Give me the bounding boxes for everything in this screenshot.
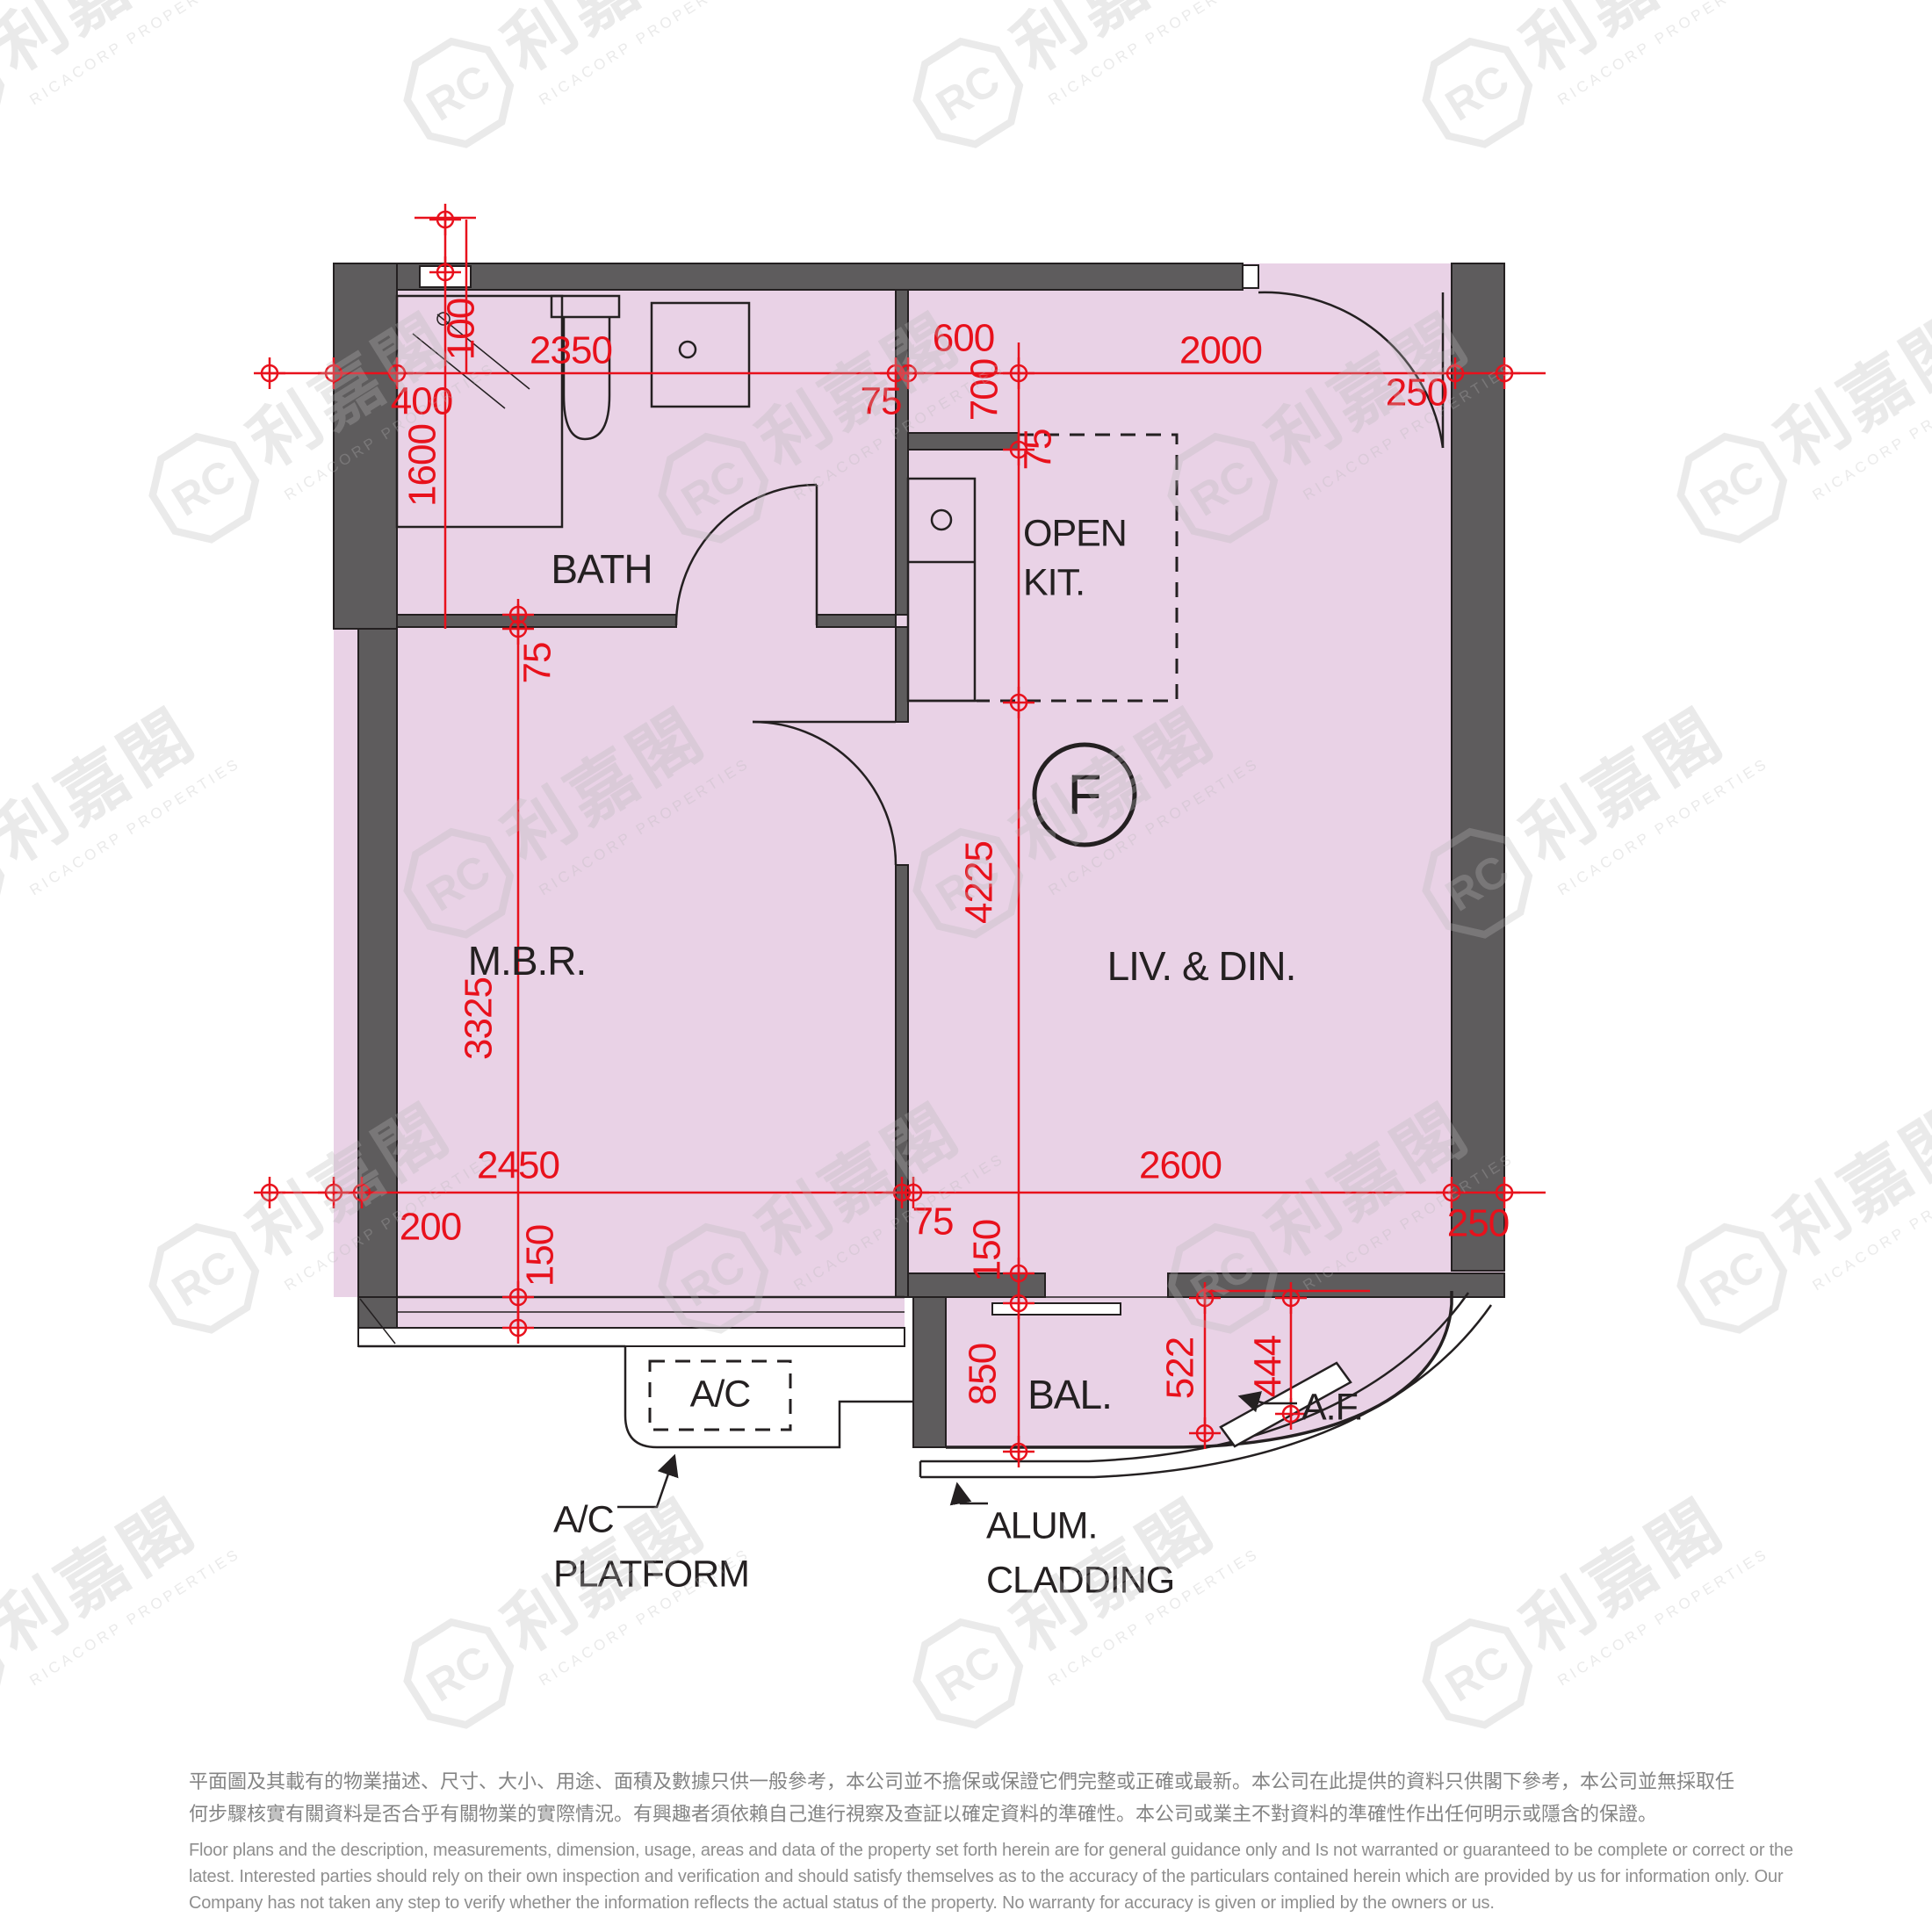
ac-platform-arrow — [617, 1456, 674, 1507]
wall-bath-bottom-right — [817, 615, 896, 627]
dim-444: 444 — [1247, 1335, 1290, 1397]
unit-floor — [334, 263, 1504, 1297]
unit-badge-letter: F — [1067, 763, 1101, 826]
wall-right — [1452, 263, 1504, 1271]
label-ac-unit: A/C — [690, 1373, 751, 1415]
dim-2600: 2600 — [1139, 1144, 1222, 1187]
alum-cladding-arrow — [957, 1484, 988, 1503]
wall-bath-bottom-left — [397, 615, 676, 627]
disclaimer-block: 平面圖及其載有的物業描述、尺寸、大小、用途、面積及數據只供一般參考，本公司並不擔… — [189, 1765, 1840, 1916]
dim-150-left: 150 — [519, 1225, 562, 1287]
label-bath: BATH — [551, 546, 652, 592]
dim-75-bottom: 75 — [912, 1200, 954, 1244]
dim-400: 400 — [391, 380, 452, 423]
label-af: A.F. — [1301, 1386, 1363, 1428]
label-open-kit-line1: OPEN — [1023, 512, 1127, 554]
wall-bath-right — [896, 290, 908, 615]
disclaimer-en-line1: Floor plans and the description, measure… — [189, 1837, 1840, 1864]
label-balcony: BAL. — [1027, 1372, 1112, 1417]
disclaimer-en-line3: Company has not taken any step to verify… — [189, 1890, 1840, 1916]
dim-150-right: 150 — [966, 1220, 1009, 1281]
dim-200: 200 — [400, 1206, 461, 1249]
label-ac-platform-line1: A/C — [553, 1498, 614, 1540]
label-mbr: M.B.R. — [468, 938, 587, 984]
dim-250-bottom: 250 — [1447, 1202, 1509, 1245]
dim-700: 700 — [963, 359, 1006, 421]
wall-partition-lower — [896, 865, 908, 1297]
dim-75-kitchen: 75 — [1017, 429, 1060, 471]
dim-600: 600 — [933, 317, 994, 360]
label-alum-line1: ALUM. — [986, 1504, 1097, 1546]
label-ac-platform-line2: PLATFORM — [553, 1553, 749, 1595]
dim-850: 850 — [962, 1344, 1005, 1405]
label-living-dining: LIV. & DIN. — [1107, 943, 1296, 989]
mbr-window-sill — [358, 1328, 905, 1346]
dim-250-top: 250 — [1386, 371, 1447, 415]
wall-partition-upper — [896, 627, 908, 722]
wall-kitchen-nook — [908, 433, 1019, 450]
dimension-marker-icon — [429, 204, 461, 235]
dimension-marker-icon — [254, 357, 285, 389]
dim-4225: 4225 — [958, 841, 1001, 924]
wall-left-lower — [358, 629, 397, 1297]
disclaimer-en-line2: latest. Interested parties should rely o… — [189, 1864, 1840, 1890]
dim-522: 522 — [1159, 1337, 1202, 1399]
wall-balcony-left — [913, 1297, 946, 1447]
label-alum-line2: CLADDING — [986, 1559, 1174, 1601]
dim-2350: 2350 — [530, 329, 612, 372]
entry-door-jamb — [1243, 265, 1258, 288]
dim-3325: 3325 — [458, 977, 501, 1060]
disclaimer-zh-line1: 平面圖及其載有的物業描述、尺寸、大小、用途、面積及數據只供一般參考，本公司並不擔… — [189, 1765, 1840, 1798]
dim-75-top: 75 — [861, 380, 902, 423]
dim-1600: 1600 — [401, 424, 444, 507]
dim-2000: 2000 — [1179, 329, 1262, 372]
wall-left-upper — [334, 263, 397, 629]
disclaimer-zh-line2: 何步驟核實有關資料是否合乎有關物業的實際情況。有興趣者須依賴自己進行視察及查証以… — [189, 1798, 1840, 1830]
floor-plan-drawing: 400 2350 100 1600 75 600 700 2000 250 75… — [0, 0, 1932, 1932]
floorplan-page: { "unit_label": "F", "rooms": { "bath": … — [0, 0, 1932, 1932]
dim-75-bathwall: 75 — [516, 643, 559, 684]
dim-100: 100 — [440, 299, 483, 360]
ac-platform-outline — [625, 1346, 913, 1447]
dim-2450: 2450 — [477, 1144, 559, 1187]
dimension-marker-icon — [254, 1177, 285, 1208]
wall-liv-bottom-right — [1168, 1273, 1504, 1297]
label-open-kit-line2: KIT. — [1023, 561, 1085, 603]
